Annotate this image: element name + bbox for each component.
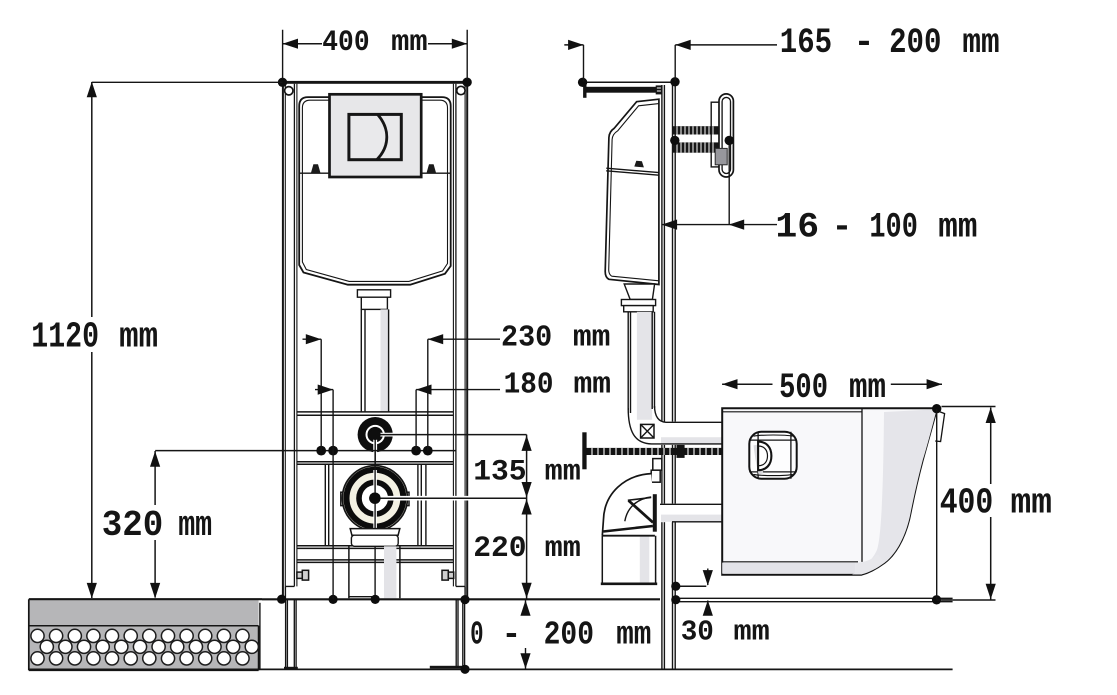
svg-text:230: 230 [501, 320, 552, 355]
svg-text:200: 200 [889, 23, 941, 63]
svg-text:mm: mm [1011, 483, 1053, 524]
svg-text:320: 320 [102, 505, 164, 546]
svg-text:165: 165 [780, 23, 832, 63]
svg-text:220: 220 [473, 532, 526, 566]
svg-text:mm: mm [962, 23, 999, 63]
svg-text:135: 135 [473, 455, 526, 489]
svg-text:400: 400 [940, 483, 994, 524]
svg-text:mm: mm [938, 208, 977, 248]
svg-text:mm: mm [178, 505, 212, 546]
svg-text:1120: 1120 [31, 316, 99, 357]
svg-text:-: - [854, 23, 875, 63]
svg-text:0: 0 [470, 616, 484, 653]
svg-text:mm: mm [574, 367, 612, 402]
svg-text:-: - [502, 616, 522, 653]
svg-text:180: 180 [504, 367, 554, 402]
svg-text:mm: mm [119, 316, 158, 357]
svg-text:mm: mm [391, 26, 428, 60]
svg-text:200: 200 [544, 616, 594, 653]
svg-text:mm: mm [734, 616, 770, 649]
svg-text:-: - [832, 208, 853, 248]
svg-text:16: 16 [775, 208, 819, 248]
svg-text:100: 100 [869, 208, 918, 248]
svg-text:400: 400 [322, 26, 369, 60]
svg-text:mm: mm [616, 616, 651, 653]
svg-text:500: 500 [779, 368, 828, 408]
svg-text:mm: mm [573, 320, 611, 355]
svg-text:30: 30 [681, 616, 714, 649]
svg-text:mm: mm [849, 368, 886, 408]
svg-text:mm: mm [545, 532, 581, 566]
svg-text:mm: mm [545, 455, 581, 489]
